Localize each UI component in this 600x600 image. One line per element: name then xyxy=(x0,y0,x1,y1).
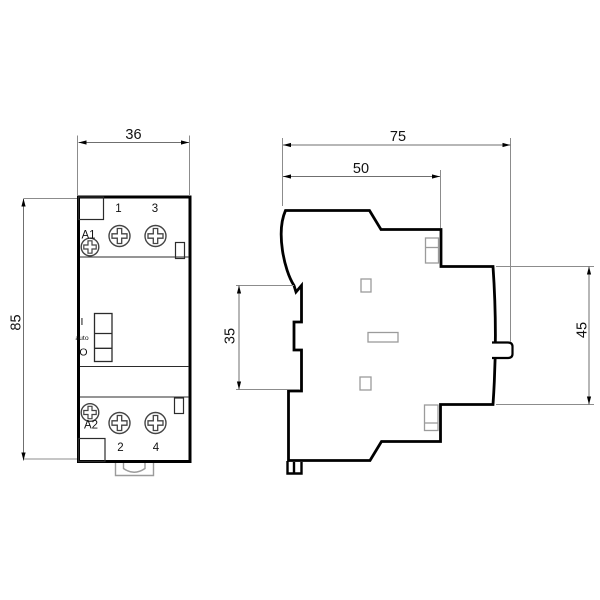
side-rail-foot xyxy=(288,461,302,474)
terminal-label-4: 4 xyxy=(153,442,160,454)
dim-side-depth-value: 75 xyxy=(390,129,406,145)
drawing-canvas: 1 3 A1 A2 2 4 I auto O xyxy=(0,0,600,600)
switch-label-auto: auto xyxy=(75,335,88,342)
coil-label-a1: A1 xyxy=(81,230,95,242)
terminal-label-2: 2 xyxy=(117,442,123,454)
terminal-screw-4 xyxy=(145,413,166,434)
side-body-outline xyxy=(281,211,495,461)
terminal-screw-3 xyxy=(145,226,166,247)
switch-label-off: O xyxy=(79,347,87,359)
dim-side-right-height-value: 45 xyxy=(575,322,591,338)
din-clip-front xyxy=(116,463,154,476)
contactor-dimension-drawing: 1 3 A1 A2 2 4 I auto O xyxy=(0,0,600,600)
terminal-screw-1 xyxy=(109,226,130,247)
dim-front-height-value: 85 xyxy=(9,314,25,330)
coil-label-a2: A2 xyxy=(84,420,98,432)
terminal-label-3: 3 xyxy=(152,203,158,215)
terminal-label-1: 1 xyxy=(115,203,121,215)
dim-side-rail-height-value: 35 xyxy=(223,328,239,344)
dim-front-width-value: 36 xyxy=(125,127,141,143)
dim-side-front-depth-value: 50 xyxy=(353,161,369,177)
front-view: 1 3 A1 A2 2 4 I auto O xyxy=(75,197,190,476)
switch-label-on: I xyxy=(81,316,84,328)
side-pin xyxy=(492,343,513,359)
terminal-screw-2 xyxy=(109,413,130,434)
side-view xyxy=(281,211,512,474)
